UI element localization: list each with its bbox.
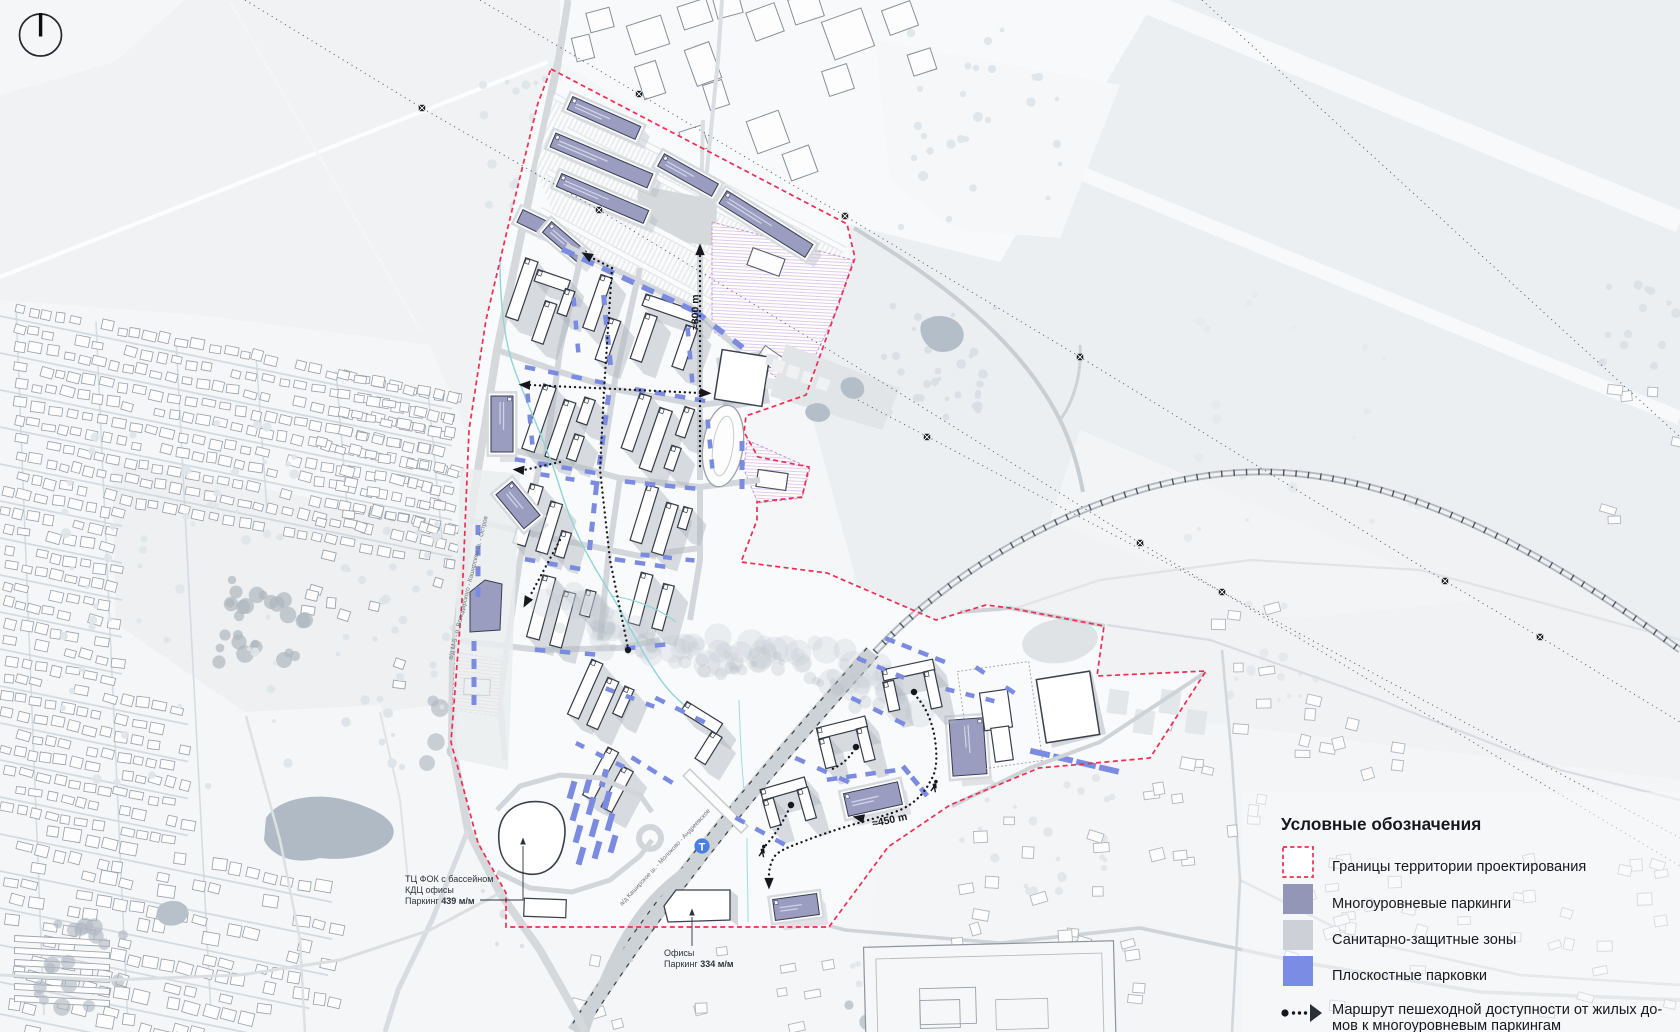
svg-text:Паркинг 439 м/м: Паркинг 439 м/м: [405, 896, 475, 906]
svg-text:Границы территории проектирова: Границы территории проектирования: [1332, 859, 1586, 875]
svg-text:Маршрут пешеходной доступности: Маршрут пешеходной доступности от жилых …: [1332, 1002, 1662, 1018]
svg-text:Паркинг 334 м/м: Паркинг 334 м/м: [664, 959, 734, 969]
svg-text:ТЦ ФОК с бассейном: ТЦ ФОК с бассейном: [405, 874, 493, 884]
svg-text:≈800 m: ≈800 m: [690, 294, 702, 330]
svg-text:T: T: [699, 842, 706, 854]
svg-text:мов к многоуровневым паркингам: мов к многоуровневым паркингам: [1332, 1018, 1561, 1032]
svg-text:Плоскостные парковки: Плоскостные парковки: [1332, 968, 1487, 984]
svg-text:Санитарно-защитные зоны: Санитарно-защитные зоны: [1332, 932, 1516, 948]
svg-text:Многоуровневые паркинги: Многоуровневые паркинги: [1332, 896, 1511, 912]
svg-text:Офисы: Офисы: [664, 948, 694, 958]
svg-text:КДЦ офисы: КДЦ офисы: [405, 885, 454, 895]
svg-text:Условные обозначения: Условные обозначения: [1281, 814, 1481, 834]
